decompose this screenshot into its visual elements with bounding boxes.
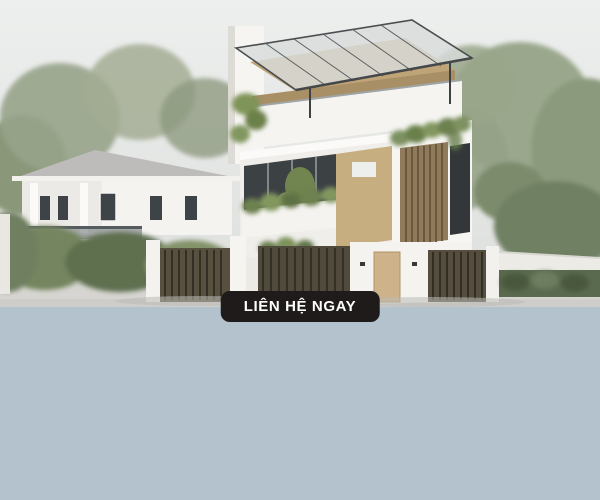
bottom-section: Hotline: 0976 272 186 – Zalo: 0917 341 5… bbox=[0, 307, 600, 500]
house-render-illustration bbox=[0, 0, 600, 307]
contact-now-button[interactable]: LIÊN HỆ NGAY bbox=[221, 291, 380, 322]
hero-house-photo bbox=[0, 0, 600, 307]
promo-poster: LIÊN HỆ NGAY bbox=[0, 0, 600, 500]
hedge-wall bbox=[499, 252, 600, 297]
